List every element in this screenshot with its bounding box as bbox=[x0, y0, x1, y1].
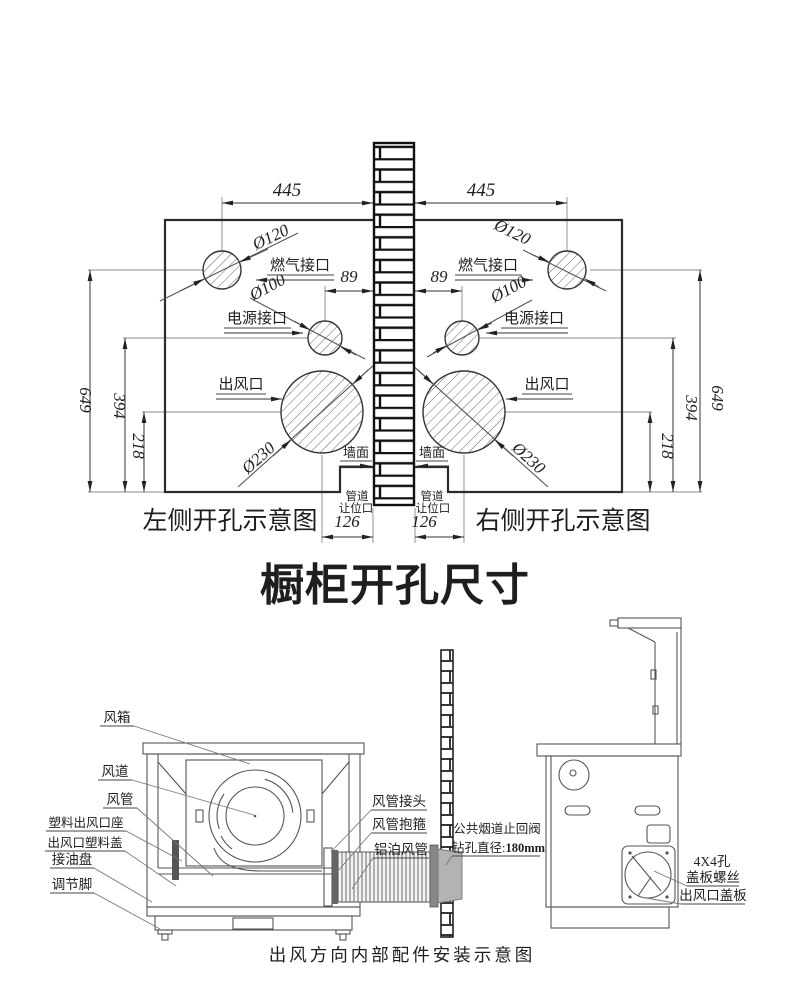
page-title: 橱柜开孔尺寸 bbox=[260, 561, 530, 610]
installation-caption: 出风方向内部配件安装示意图 bbox=[269, 945, 536, 965]
cover-holes-label: 4X4孔 bbox=[694, 854, 731, 869]
dim-126-right: 126 bbox=[411, 512, 437, 531]
dia100-right-label: Ø100 bbox=[486, 272, 530, 307]
dim-218-right: 218 bbox=[658, 433, 677, 459]
wall-label-right: 墙面 bbox=[419, 445, 445, 460]
dim-126-left: 126 bbox=[334, 512, 360, 531]
technical-drawing: Ø120 Ø120 Ø100 Ø100 Ø230 Ø230 燃气接口 bbox=[0, 0, 790, 1005]
power-label-right: 电源接口 bbox=[504, 310, 564, 327]
dim-394-left: 394 bbox=[110, 392, 129, 419]
alu-pipe-label: 铝泊风管 bbox=[374, 842, 428, 857]
caption-right-opening: 右侧开孔示意图 bbox=[475, 507, 650, 535]
wall-label-left: 墙面 bbox=[343, 445, 369, 460]
dim-649-right: 649 bbox=[708, 385, 727, 411]
aluminum-duct-part bbox=[338, 852, 430, 902]
pipe-clearance-label-right-1: 管道 bbox=[421, 489, 444, 503]
hood-side-view bbox=[537, 618, 681, 928]
dia120-left-label: Ø120 bbox=[249, 220, 293, 254]
outlet-cover-label: 出风口盖板 bbox=[679, 888, 747, 903]
check-valve-label: 公共烟道止回阀 bbox=[453, 822, 541, 836]
installation-diagram: 风箱 风道 风管 塑料出风口座 出风口塑料盖 接油盘 调节脚 风管接头 bbox=[45, 618, 747, 965]
pipe-clearance-label-left-1: 管道 bbox=[346, 489, 369, 503]
air-duct-label: 风道 bbox=[102, 764, 129, 779]
plastic-seat-label: 塑料出风口座 bbox=[48, 815, 123, 830]
outlet-label-right: 出风口 bbox=[524, 376, 569, 393]
dia230-right-label: Ø230 bbox=[508, 438, 550, 478]
check-valve-part bbox=[438, 849, 462, 903]
caption-left-opening: 左侧开孔示意图 bbox=[142, 507, 317, 535]
cabinet-opening-diagram: Ø120 Ø120 Ø100 Ø100 Ø230 Ø230 燃气接口 bbox=[76, 143, 727, 543]
dim-445-left: 445 bbox=[273, 180, 302, 201]
plastic-cover-label: 出风口塑料盖 bbox=[47, 835, 122, 850]
outlet-label-left: 出风口 bbox=[218, 376, 263, 393]
dim-218-left: 218 bbox=[129, 433, 148, 459]
adjust-feet-label: 调节脚 bbox=[52, 877, 93, 892]
dim-394-right: 394 bbox=[682, 394, 701, 421]
gas-label-right: 燃气接口 bbox=[458, 256, 518, 274]
gas-label-left: 燃气接口 bbox=[270, 256, 330, 274]
page: Ø120 Ø120 Ø100 Ø100 Ø230 Ø230 燃气接口 bbox=[0, 0, 790, 1005]
pipe-clamp-label: 风管抱箍 bbox=[372, 816, 426, 832]
pipe-clamp-part bbox=[332, 850, 338, 904]
oil-tray-label: 接油盘 bbox=[52, 851, 93, 867]
dim-89-left: 89 bbox=[341, 267, 359, 286]
fan-box-label: 风箱 bbox=[104, 710, 131, 725]
drill-diameter-label: 钻孔直径:180mm bbox=[452, 840, 546, 855]
gas-hole-right bbox=[548, 251, 586, 289]
brick-wall-top bbox=[374, 143, 414, 505]
dim-649-left: 649 bbox=[76, 387, 95, 413]
outlet-cover-plate-part bbox=[622, 846, 675, 904]
dim-445-right: 445 bbox=[467, 180, 496, 201]
power-label-left: 电源接口 bbox=[227, 310, 287, 327]
dim-89-right: 89 bbox=[431, 267, 449, 286]
duct-wall-flange bbox=[430, 845, 438, 907]
air-pipe-label: 风管 bbox=[107, 792, 134, 807]
pipe-joint-label: 风管接头 bbox=[372, 793, 426, 809]
cover-screws-label: 盖板螺丝 bbox=[686, 870, 740, 885]
dia230-left-label: Ø230 bbox=[237, 438, 279, 478]
